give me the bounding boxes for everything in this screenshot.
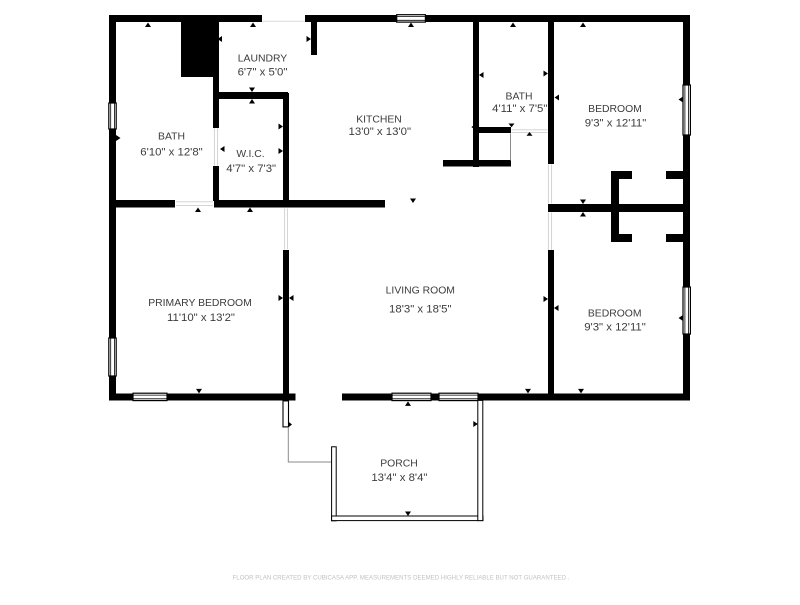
svg-text:FLOOR PLAN CREATED BY CUBICASA: FLOOR PLAN CREATED BY CUBICASA APP. MEAS…	[233, 574, 570, 581]
svg-text:13'0" x 13'0": 13'0" x 13'0"	[349, 126, 411, 138]
svg-text:BATH: BATH	[506, 91, 533, 102]
svg-text:6'7" x 5'0": 6'7" x 5'0"	[238, 67, 288, 79]
svg-text:4'7" x 7'3": 4'7" x 7'3"	[226, 163, 276, 175]
svg-text:BEDROOM: BEDROOM	[588, 309, 642, 320]
svg-text:13'4" x 8'4": 13'4" x 8'4"	[371, 472, 427, 484]
svg-text:PORCH: PORCH	[380, 458, 418, 469]
svg-text:4'11" x 7'5": 4'11" x 7'5"	[492, 103, 547, 115]
svg-text:9'3" x 12'11": 9'3" x 12'11"	[584, 322, 646, 334]
svg-text:LIVING ROOM: LIVING ROOM	[386, 286, 455, 297]
svg-text:BATH: BATH	[158, 131, 185, 142]
svg-text:6'10" x 12'8": 6'10" x 12'8"	[140, 146, 202, 158]
svg-text:9'3" x 12'11": 9'3" x 12'11"	[585, 117, 647, 129]
svg-text:BEDROOM: BEDROOM	[588, 104, 642, 115]
svg-text:LAUNDRY: LAUNDRY	[238, 54, 288, 65]
svg-text:11'10" x 13'2": 11'10" x 13'2"	[167, 312, 235, 324]
svg-text:W.I.C.: W.I.C.	[236, 149, 264, 160]
svg-text:PRIMARY BEDROOM: PRIMARY BEDROOM	[148, 298, 252, 309]
svg-text:18'3" x 18'5": 18'3" x 18'5"	[389, 303, 451, 315]
svg-text:KITCHEN: KITCHEN	[356, 115, 402, 126]
